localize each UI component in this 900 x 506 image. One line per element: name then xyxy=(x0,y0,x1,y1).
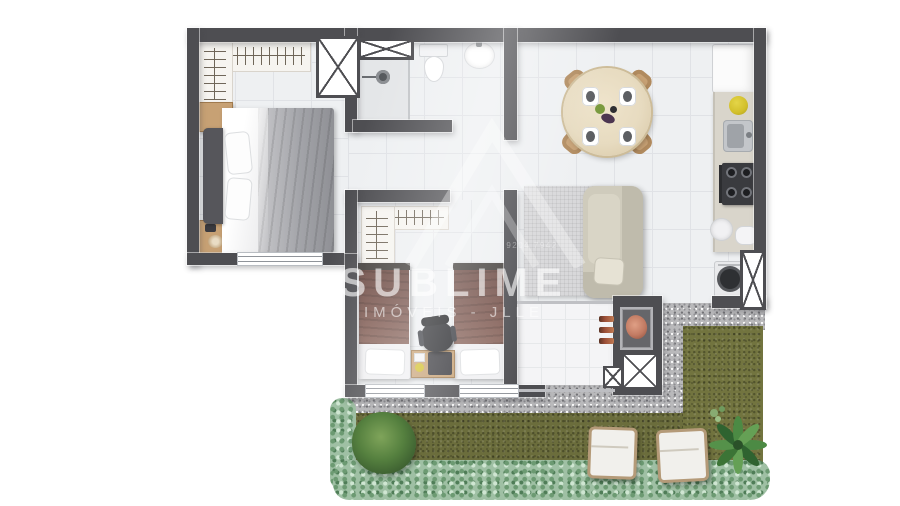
centerpiece-dark xyxy=(610,106,617,113)
desk-decor-gold xyxy=(415,363,424,372)
bed-twin-left-pillow xyxy=(365,348,406,375)
fruit-bowl xyxy=(729,96,748,115)
shower-area xyxy=(357,54,410,122)
nightstand-tray xyxy=(208,235,223,248)
plant-right xyxy=(700,403,770,481)
wall-master-right-lower xyxy=(345,190,357,253)
lounge-chair-1 xyxy=(587,426,638,480)
bed-master-duvet-folds xyxy=(258,108,334,253)
plate-2 xyxy=(619,87,636,106)
shower-head-icon xyxy=(376,70,390,84)
trash-bin xyxy=(710,218,733,241)
wall-bedroom2-top xyxy=(345,190,450,202)
bed-twin-left-headrail xyxy=(358,263,410,270)
sofa-pillow xyxy=(593,257,625,286)
kitchen-sink xyxy=(723,120,753,152)
bbq-grill-picture xyxy=(620,307,653,350)
wall-left xyxy=(187,28,199,265)
bed-twin-right-duvet xyxy=(454,270,504,344)
wardrobe-master-rail-ticks-2 xyxy=(204,48,226,100)
balcony-sliding-door xyxy=(517,301,613,304)
bed-twin-right-pillow xyxy=(460,348,501,375)
oven-handle xyxy=(719,165,722,203)
balcony-edge xyxy=(517,389,615,392)
wall-bedroom2-right xyxy=(504,190,517,397)
wardrobe-2-rod-v xyxy=(376,211,377,259)
lounge-chair-2-fold xyxy=(660,448,699,452)
window-master-bedroom xyxy=(238,253,322,265)
shaft-vent-1 xyxy=(316,36,360,98)
office-chair xyxy=(415,312,458,357)
window-bedroom2-left xyxy=(366,385,424,397)
sofa-seat xyxy=(588,194,620,264)
bed-twin-left-folds xyxy=(359,270,409,344)
wall-bathroom-bottom xyxy=(353,120,452,132)
bbq-shelf-3 xyxy=(599,338,614,344)
nightstand-lamp xyxy=(205,224,216,232)
wardrobe-2-ticks-v xyxy=(366,211,388,259)
desk-monitor xyxy=(428,352,452,375)
wardrobe-master-vertical xyxy=(199,42,233,104)
stove xyxy=(722,163,756,205)
burner-1 xyxy=(726,167,737,178)
burner-3 xyxy=(726,187,737,198)
bed-twin-left xyxy=(358,263,410,379)
bed-twin-right-headrail xyxy=(453,263,505,270)
wardrobe-2-vertical xyxy=(361,206,395,264)
kitchen-faucet xyxy=(746,132,752,138)
bbq-shelf-2 xyxy=(599,327,614,333)
burner-4 xyxy=(741,187,752,198)
fridge xyxy=(712,44,756,93)
plate-3 xyxy=(582,127,599,146)
bed-twin-right-folds xyxy=(454,270,504,344)
bed-twin-right xyxy=(453,263,505,379)
pillow-master-2 xyxy=(224,177,253,221)
bed-twin-left-duvet xyxy=(359,270,409,344)
pillow-master-1 xyxy=(224,131,253,175)
dining-table xyxy=(563,68,651,156)
bed-master-duvet xyxy=(258,108,334,253)
window-bedroom2-right xyxy=(460,385,518,397)
burner-2 xyxy=(741,167,752,178)
plate-4 xyxy=(619,127,636,146)
shaft-vent-2 xyxy=(358,38,414,60)
shaft-vent-bbq-small xyxy=(603,366,623,388)
lounge-chair-1-fold xyxy=(591,445,628,448)
bush-left xyxy=(352,412,416,474)
wall-bathroom-right xyxy=(504,28,517,140)
plate-1 xyxy=(582,87,599,106)
wardrobe-master-rod-2 xyxy=(214,48,215,100)
wall-bedroom2-left xyxy=(345,253,357,397)
shaft-vent-bbq xyxy=(621,352,659,390)
shaft-vent-laundry xyxy=(740,250,766,310)
floorplan-render: SUBLIME IMÓVEIS - JLLE 9204 7942 xyxy=(0,0,900,506)
wall-top xyxy=(187,28,766,42)
bbq-shelf-1 xyxy=(599,316,614,322)
washing-machine-door xyxy=(720,269,740,289)
kitchen-sink-basin xyxy=(727,124,744,148)
bed-master-headboard xyxy=(203,128,223,224)
